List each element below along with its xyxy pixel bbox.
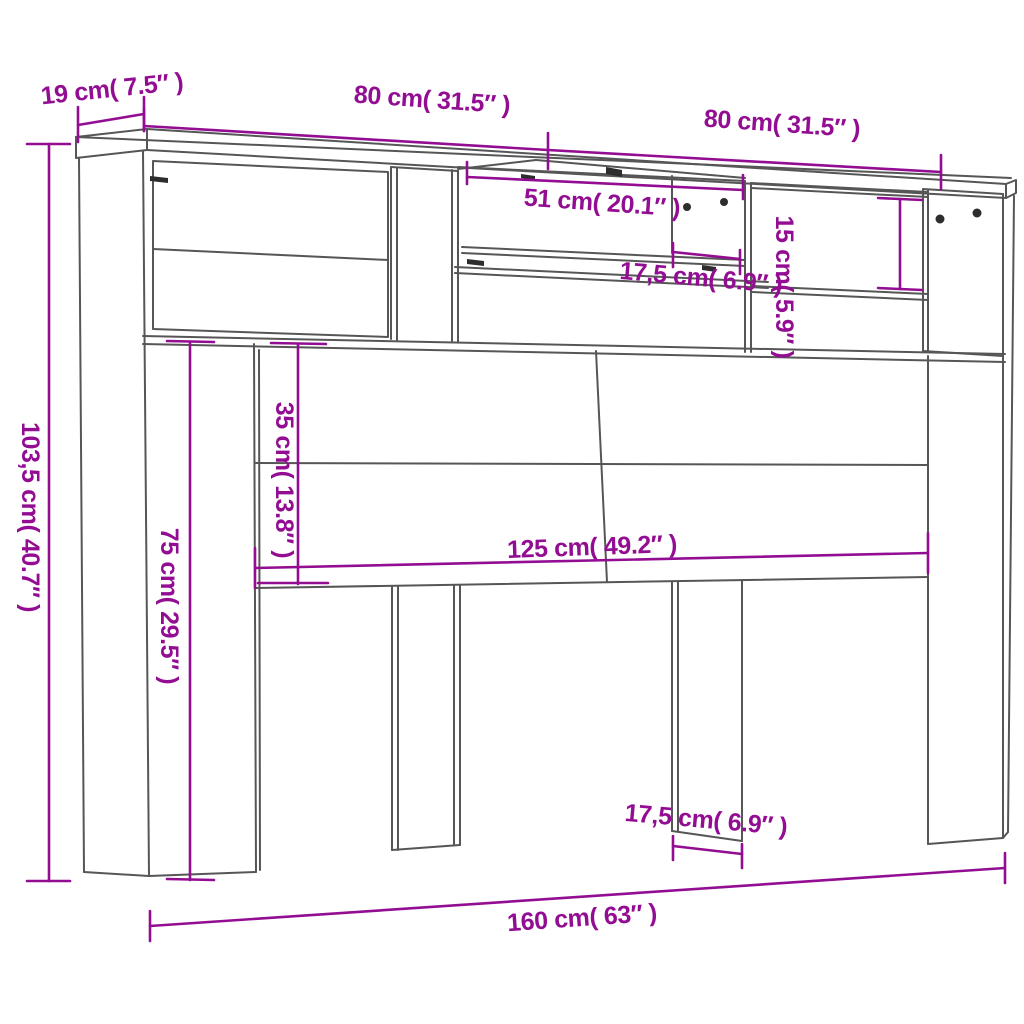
- right-door: [923, 189, 1003, 356]
- partition-left: [391, 167, 458, 342]
- dim-35-tick-top: [271, 343, 326, 344]
- dim-total-height-label: 103,5 cm( 40.7″ ): [16, 422, 44, 612]
- diagram-canvas: 19 cm( 7.5″ ) 103,5 cm( 40.7″ ) 80 cm( 3…: [0, 0, 1024, 1024]
- backboard-bottom-edge: [256, 577, 928, 588]
- left-door-mid-line: [153, 249, 388, 260]
- dim-leg-height: 75 cm( 29.5″ ): [155, 341, 214, 880]
- dim-right-opening-height: 15 cm( 5.9″ ): [770, 198, 922, 359]
- knob-hole-right-2: [973, 209, 982, 218]
- dim-total-height: 103,5 cm( 40.7″ ): [16, 144, 70, 881]
- dim-125-label: 125 cm( 49.2″ ): [507, 530, 678, 564]
- headboard-dimension-diagram: 19 cm( 7.5″ ) 103,5 cm( 40.7″ ) 80 cm( 3…: [0, 0, 1024, 1024]
- left-back-edge: [79, 158, 84, 872]
- dim-depth-line: [78, 114, 144, 125]
- furniture-outline: [76, 129, 1016, 876]
- left-side-panel: [79, 151, 260, 876]
- dimension-annotations: 19 cm( 7.5″ ) 103,5 cm( 40.7″ ) 80 cm( 3…: [16, 68, 1005, 941]
- row-bottom-board: [143, 336, 1005, 362]
- dim-51-label: 51 cm( 20.1″ ): [523, 184, 681, 223]
- left-side-bottom-edge: [84, 872, 149, 876]
- dim-width-right-label: 80 cm( 31.5″ ): [703, 105, 861, 144]
- right-top-edge-a: [751, 183, 928, 192]
- right-upright-bottom-edge: [928, 838, 1003, 844]
- dim-175l-line: [673, 846, 742, 854]
- dim-depth-label: 19 cm( 7.5″ ): [39, 68, 184, 111]
- leg-middle-left: [392, 585, 460, 850]
- row-bottom-edge-a: [143, 336, 1005, 354]
- shelf-handle-mark: [467, 259, 484, 266]
- left-door: [150, 161, 388, 337]
- backboard-mid-line: [256, 463, 928, 465]
- leg-ml-bottom-edge: [392, 845, 460, 850]
- shelf-a-top-edge: [462, 247, 745, 260]
- left-door-outline: [153, 161, 388, 337]
- dim-total-width: 160 cm( 63″ ): [150, 853, 1005, 941]
- dim-175u-label: 17,5 cm( 6.9″ ): [619, 257, 784, 299]
- left-upright-bottom-edge: [149, 872, 256, 876]
- dim-15-tick-bottom: [878, 288, 922, 290]
- dim-175l-label: 17,5 cm( 6.9″ ): [624, 799, 789, 841]
- knob-hole-middle-1: [683, 203, 691, 211]
- right-upright: [928, 194, 1014, 844]
- dim-15-tick-top: [878, 198, 922, 200]
- top-panel-left-end-face: [76, 129, 147, 158]
- row-bottom-edge-b: [143, 344, 1005, 362]
- dim-160-label: 160 cm( 63″ ): [506, 899, 658, 937]
- leg-middle-right: [672, 581, 742, 841]
- dim-width-left-line: [144, 126, 548, 150]
- right-back-sliver-edge: [1008, 196, 1014, 832]
- middle-top-diagonal: [458, 160, 536, 169]
- dim-35-label: 35 cm( 13.8″ ): [270, 402, 298, 559]
- backboard: [256, 351, 928, 844]
- left-front-corner-edge: [143, 151, 149, 876]
- dim-leg-width: 17,5 cm( 6.9″ ): [624, 799, 789, 868]
- left-upright-right-edge: [254, 344, 256, 872]
- dim-75-tick-top: [167, 341, 214, 342]
- dim-width-left-label: 80 cm( 31.5″ ): [353, 81, 511, 120]
- dim-75-tick-bottom: [167, 879, 214, 880]
- dim-upper-shelf-width: 17,5 cm( 6.9″ ): [619, 243, 784, 299]
- knob-hole-middle-2: [720, 198, 728, 206]
- left-upright-right-edge-inner: [259, 350, 260, 870]
- dim-75-label: 75 cm( 29.5″ ): [155, 528, 183, 685]
- right-door-outline: [923, 189, 1003, 356]
- partition-right: [745, 181, 751, 352]
- knob-hole-right-1: [936, 215, 945, 224]
